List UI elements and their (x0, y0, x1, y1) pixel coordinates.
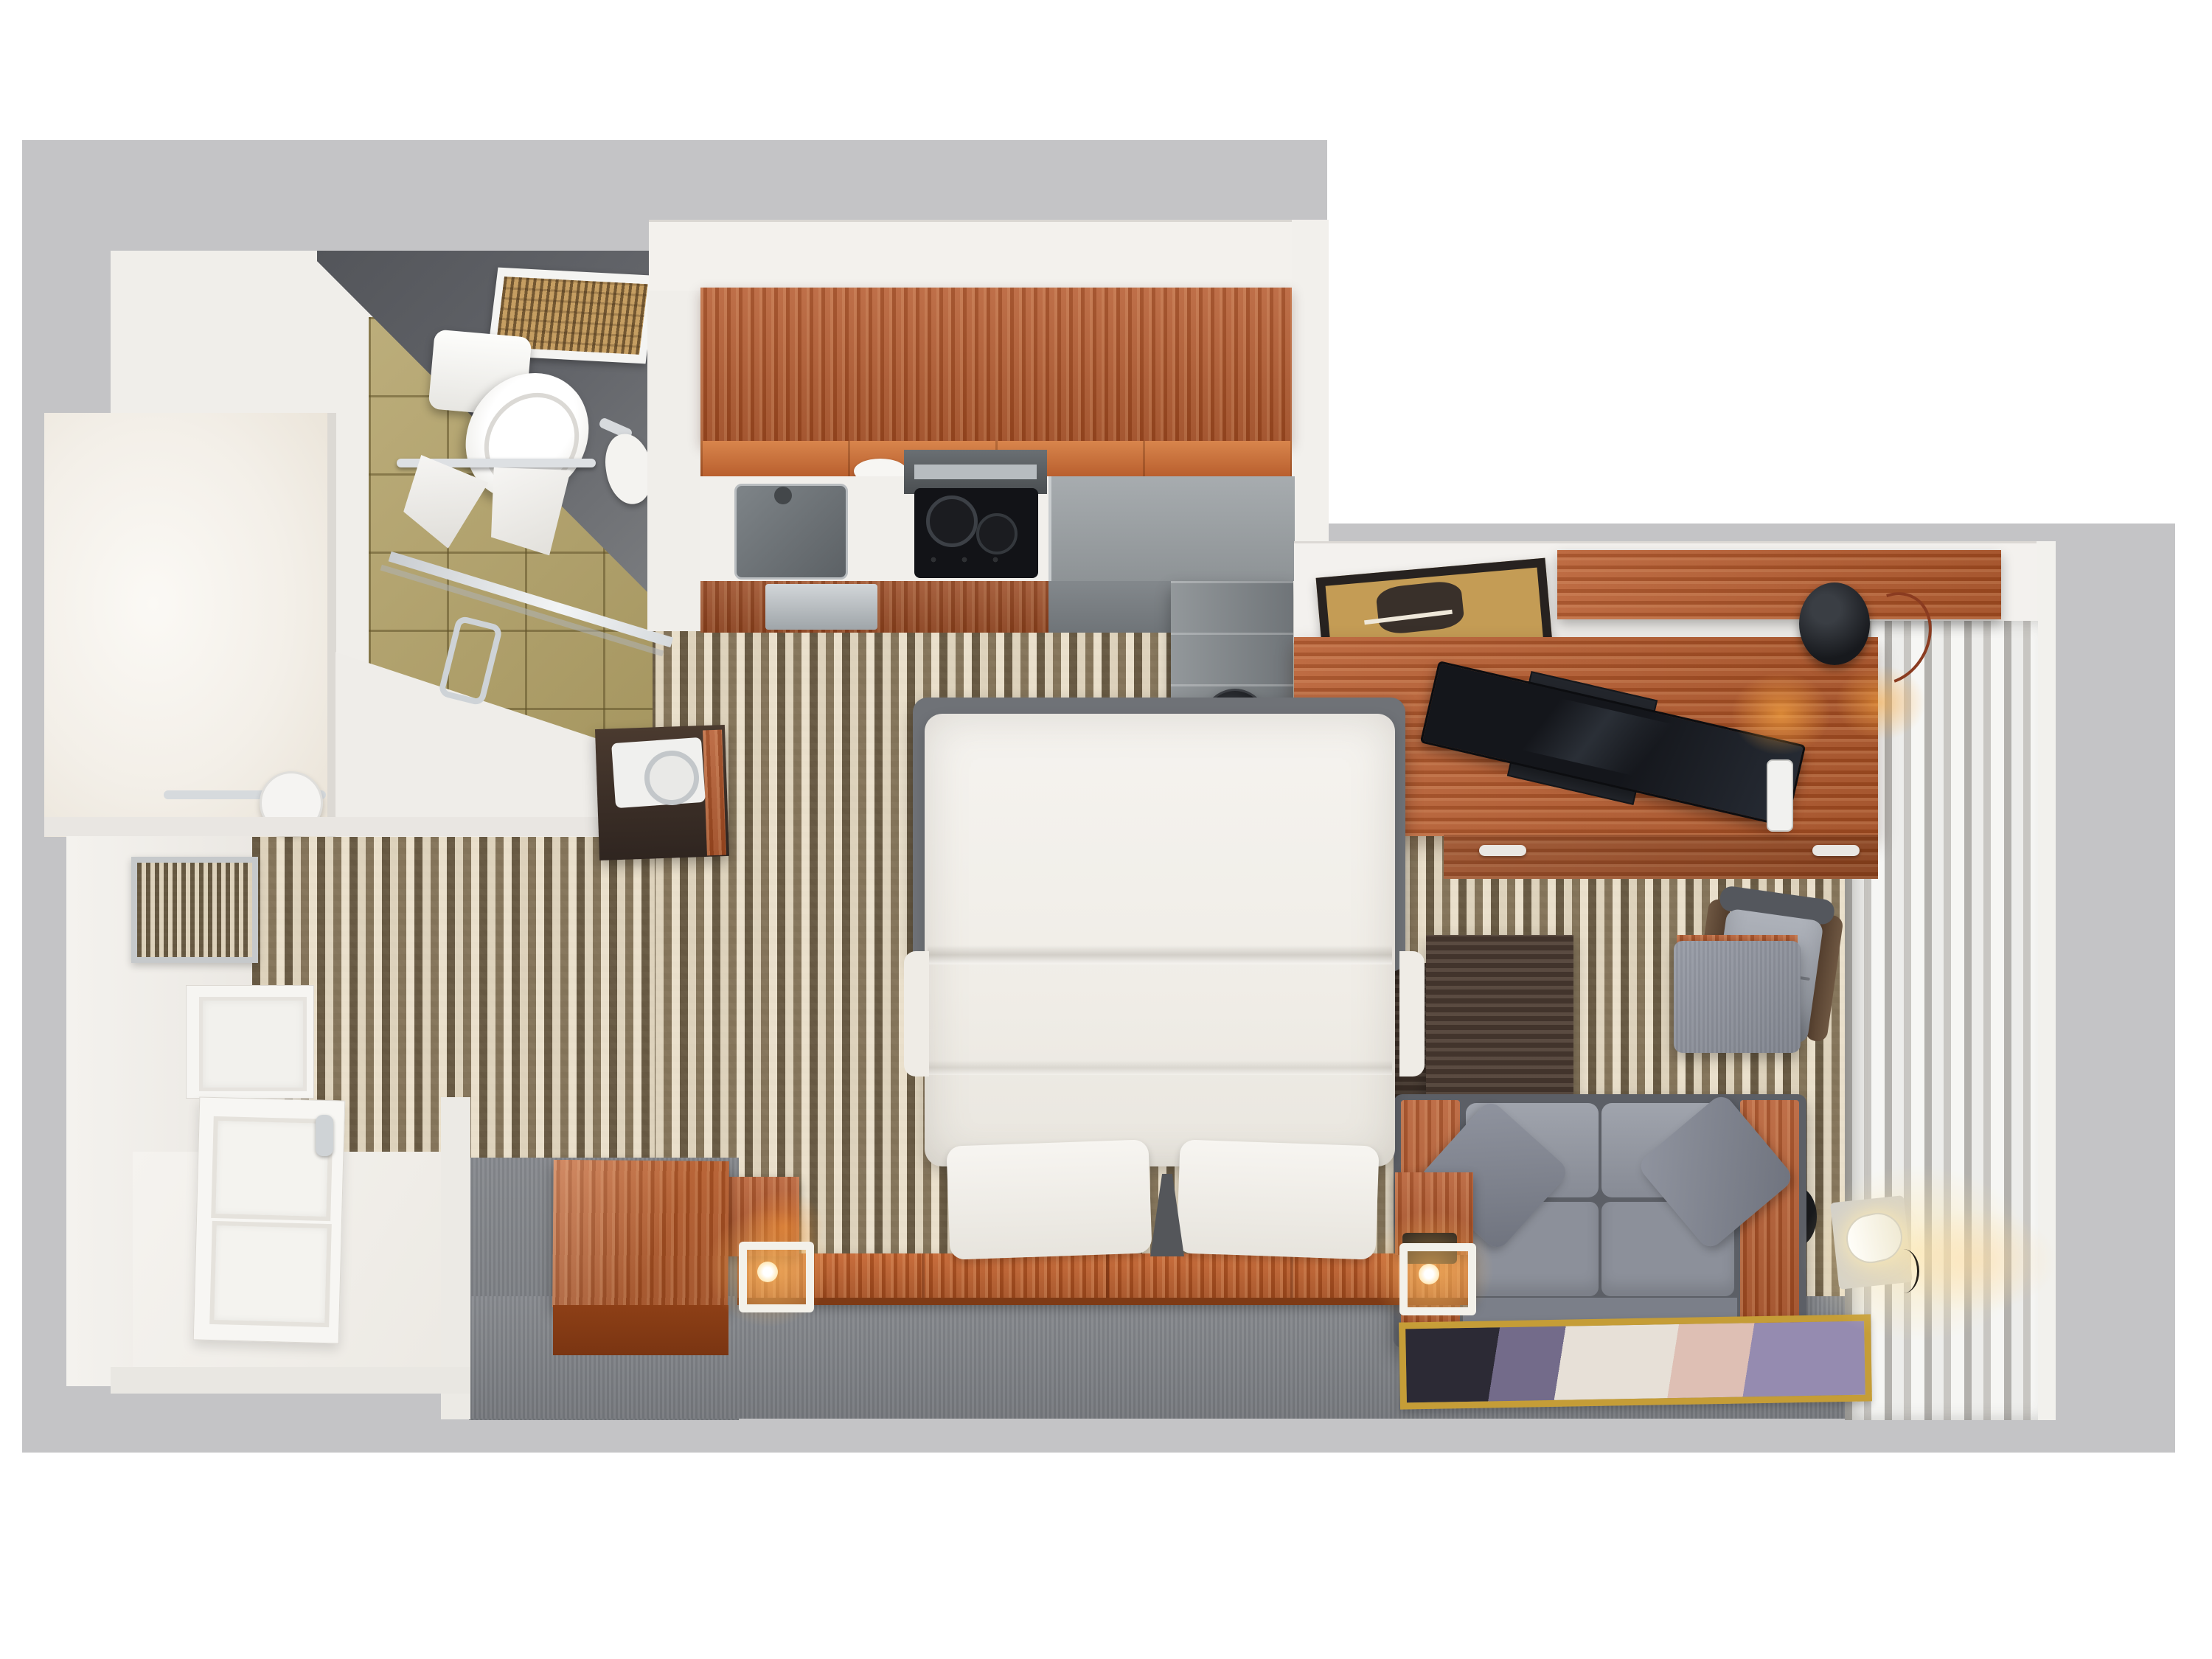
floor-plan-render (0, 0, 2212, 1659)
storage-chest (552, 1160, 729, 1309)
duvet-side-flap (1399, 951, 1425, 1077)
cube-lamp (739, 1242, 814, 1312)
bed-pillow (946, 1139, 1152, 1259)
storage-chest-front (553, 1305, 728, 1355)
cube-lamp (1399, 1243, 1476, 1315)
lamp-bulb-icon (757, 1262, 778, 1282)
headboard-platform (737, 1253, 1475, 1304)
bedroom (0, 0, 2212, 1659)
bed-pillow (1176, 1139, 1379, 1259)
duvet-side-flap (904, 951, 929, 1077)
bed-duvet (925, 714, 1395, 1166)
platform-edge (737, 1298, 1475, 1305)
lamp-bulb-icon (1419, 1264, 1439, 1284)
duvet-fold (928, 1060, 1392, 1075)
duvet-fold (928, 945, 1392, 964)
